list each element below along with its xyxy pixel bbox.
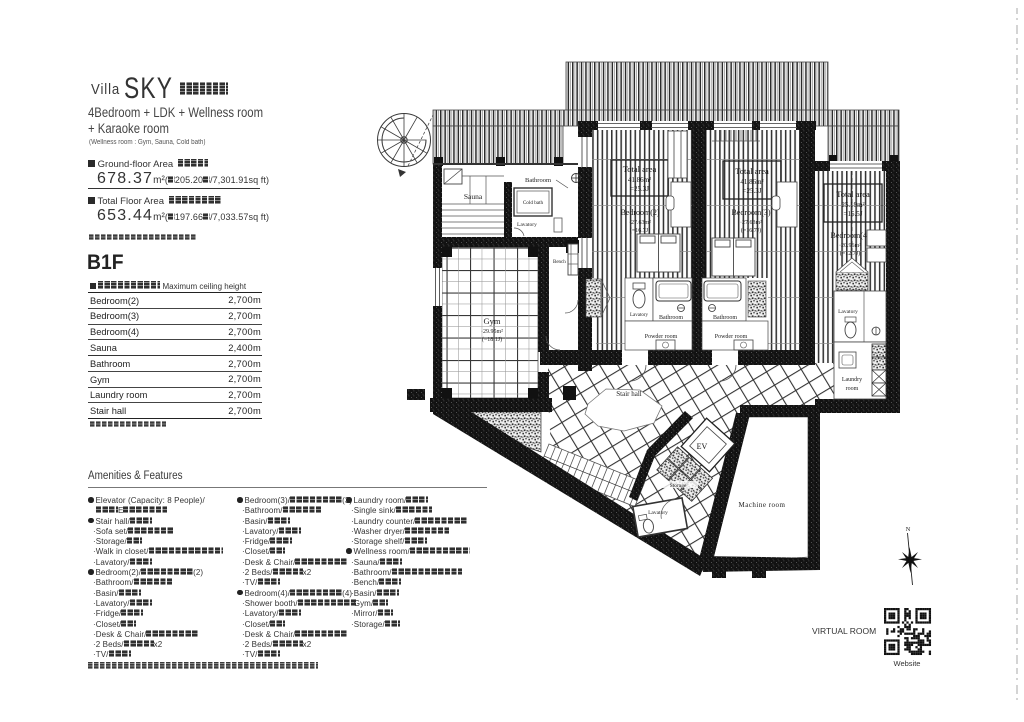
svg-text:=15.5J: =15.5J xyxy=(844,210,863,218)
svg-text:Bedroom(4): Bedroom(4) xyxy=(830,231,869,240)
svg-text:(=12.7J): (=12.7J) xyxy=(840,250,860,257)
svg-text:Laundry: Laundry xyxy=(842,377,862,383)
svg-text:N: N xyxy=(906,526,911,533)
svg-text:Sauna: Sauna xyxy=(464,192,483,201)
svg-text:=25.3J: =25.3J xyxy=(743,187,762,195)
svg-text:·20.96m²: ·20.96m² xyxy=(839,243,861,249)
svg-text:Bedroom(2): Bedroom(2) xyxy=(620,208,659,217)
svg-text:Bedroom(3): Bedroom(3) xyxy=(731,208,770,217)
svg-text:Powder room: Powder room xyxy=(645,334,678,340)
svg-text:Lavatory: Lavatory xyxy=(648,510,668,516)
svg-text:Total area: Total area xyxy=(623,164,657,174)
svg-text:Gym: Gym xyxy=(484,316,501,326)
svg-text:Stair hall: Stair hall xyxy=(616,390,642,398)
svg-text:Storage: Storage xyxy=(670,483,687,489)
svg-text:room: room xyxy=(846,386,859,392)
svg-text:(=16.7J): (=16.7J) xyxy=(741,227,761,234)
svg-text:·27.63m²: ·27.63m² xyxy=(629,220,651,226)
svg-text:Machine room: Machine room xyxy=(738,501,785,509)
svg-text:41.86m²: 41.86m² xyxy=(628,176,651,184)
svg-text:Bench: Bench xyxy=(553,260,566,265)
svg-text:(=18.1J): (=18.1J) xyxy=(482,336,502,343)
svg-text:·29.95m²: ·29.95m² xyxy=(481,329,503,335)
svg-text:=25.3J: =25.3J xyxy=(630,185,649,193)
svg-text:Bathroom: Bathroom xyxy=(659,315,683,321)
svg-text:Bathroom: Bathroom xyxy=(525,177,551,184)
svg-text:Cold bath: Cold bath xyxy=(523,200,544,206)
svg-text:25.19m²: 25.19m² xyxy=(841,201,864,209)
svg-text:41.86m²: 41.86m² xyxy=(740,178,763,186)
svg-text:Lavatory: Lavatory xyxy=(838,309,858,315)
svg-text:Lavatory: Lavatory xyxy=(517,222,537,228)
svg-text:Website: Website xyxy=(894,659,921,668)
svg-text:Powder room: Powder room xyxy=(715,334,748,340)
svg-text:EV: EV xyxy=(697,442,708,451)
svg-text:·27.63m²: ·27.63m² xyxy=(740,220,762,226)
svg-text:(=16.7J): (=16.7J) xyxy=(630,227,650,234)
svg-text:Total area: Total area xyxy=(735,166,769,176)
svg-text:VIRTUAL ROOM: VIRTUAL ROOM xyxy=(812,626,876,636)
svg-text:Lavatory: Lavatory xyxy=(630,313,649,318)
svg-text:Bathroom: Bathroom xyxy=(713,315,737,321)
svg-text:Total area: Total area xyxy=(836,189,870,199)
